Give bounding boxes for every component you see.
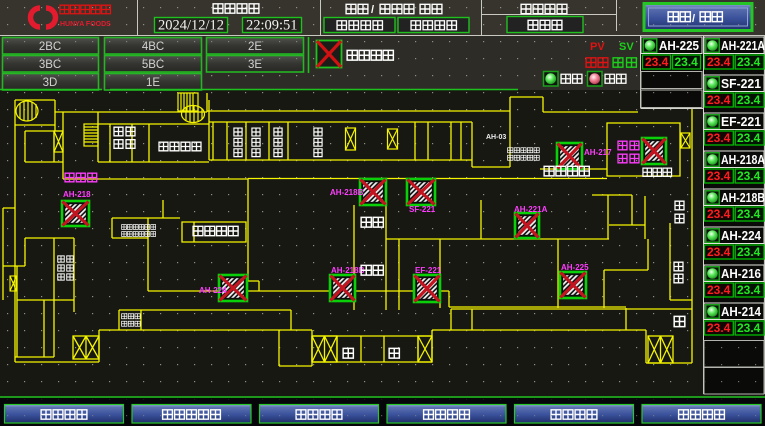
svg-text:AH-218B: AH-218B	[331, 266, 365, 275]
svg-text:23.4: 23.4	[707, 93, 731, 107]
svg-text:23.4: 23.4	[737, 207, 761, 221]
svg-text:23.4: 23.4	[737, 321, 761, 335]
svg-text:23.4: 23.4	[737, 245, 761, 259]
svg-text:2024/12/12: 2024/12/12	[158, 18, 224, 34]
svg-text:AH-214: AH-214	[721, 305, 761, 319]
svg-text:23.4: 23.4	[737, 283, 761, 297]
svg-text:23.4: 23.4	[737, 131, 761, 145]
svg-text:PV: PV	[590, 41, 605, 53]
svg-text:EF-221: EF-221	[415, 266, 442, 275]
svg-text:SV: SV	[619, 41, 634, 53]
svg-text:AH-221A: AH-221A	[514, 205, 548, 214]
svg-text:23.4: 23.4	[737, 169, 761, 183]
svg-text:AH-225: AH-225	[561, 263, 589, 272]
svg-text:HUNYA FOODS: HUNYA FOODS	[60, 21, 111, 28]
svg-text:AH-216: AH-216	[721, 267, 761, 281]
svg-text:23.4: 23.4	[737, 93, 761, 107]
svg-text:23.4: 23.4	[737, 55, 761, 69]
svg-text:23.4: 23.4	[645, 55, 669, 69]
svg-text:AH-03: AH-03	[486, 134, 506, 141]
svg-text:23.4: 23.4	[707, 245, 731, 259]
svg-text:EF-221: EF-221	[721, 115, 761, 129]
svg-text:23.4: 23.4	[675, 55, 699, 69]
svg-text:AH-224: AH-224	[199, 286, 227, 295]
svg-text:/: /	[371, 4, 374, 16]
svg-text:23.4: 23.4	[707, 169, 731, 183]
svg-text:SF-221: SF-221	[721, 77, 761, 91]
svg-text:23.4: 23.4	[707, 321, 731, 335]
svg-text:22:09:51: 22:09:51	[246, 18, 298, 34]
svg-text:AH-221A: AH-221A	[721, 39, 765, 53]
svg-text:AH-218B: AH-218B	[721, 191, 765, 205]
svg-text:23.4: 23.4	[707, 131, 731, 145]
svg-text:AH-225: AH-225	[659, 39, 699, 53]
svg-text:23.4: 23.4	[707, 283, 731, 297]
svg-text:23.4: 23.4	[707, 207, 731, 221]
svg-text:AH-218A: AH-218A	[721, 153, 765, 167]
svg-text:23.4: 23.4	[707, 55, 731, 69]
svg-text:AH-218B: AH-218B	[330, 188, 364, 197]
svg-text:AH-217: AH-217	[584, 148, 612, 157]
svg-text:AH-218: AH-218	[63, 190, 91, 199]
svg-text:SF-221: SF-221	[409, 205, 436, 214]
svg-text:AH-224: AH-224	[721, 229, 761, 243]
